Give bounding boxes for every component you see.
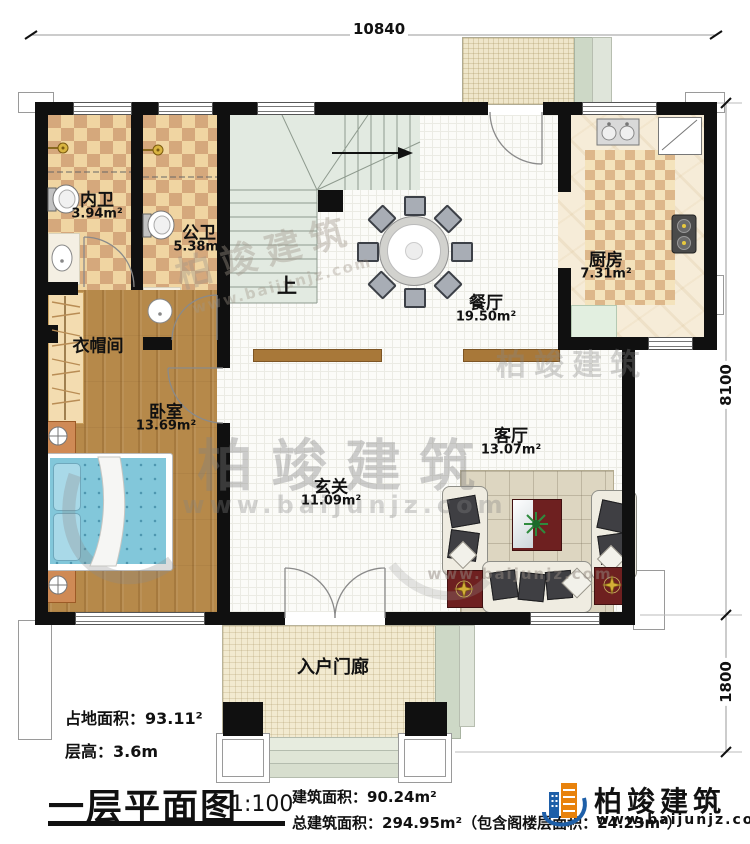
wall: [48, 282, 78, 295]
window-sill: [18, 620, 52, 740]
dim-right-lower: 1800: [717, 658, 735, 706]
window: [257, 102, 315, 115]
porch-side-step2: [459, 625, 475, 727]
wall: [543, 102, 582, 115]
bath-inner-sink-area: [48, 233, 80, 285]
wall-bath-divider: [131, 115, 143, 290]
brand-logo-icon: [536, 778, 590, 828]
window: [73, 102, 132, 115]
window: [582, 102, 657, 115]
dim-top: 10840: [350, 20, 408, 38]
beam-hall-right: [463, 349, 560, 362]
bed-pillow: [53, 513, 81, 561]
window: [158, 102, 213, 115]
brand-logo: 柏竣建筑 www.baijunjz.com: [536, 778, 746, 834]
scale-text: 1:100: [230, 792, 293, 817]
land-area-text: 占地面积：93.11²: [65, 705, 203, 729]
stairs-area-lower: [230, 190, 317, 303]
wall: [558, 337, 648, 350]
title-underline: [48, 821, 285, 826]
wall: [132, 102, 158, 115]
sofa-cushion: [518, 572, 547, 603]
armchair-cushion: [447, 495, 481, 529]
wall-kitchen: [558, 115, 571, 192]
area-gongwei: 5.38m²: [173, 240, 224, 255]
pillar-base-right: [398, 733, 452, 783]
beam-hall-left: [253, 349, 382, 362]
cloak-hanger-rack: [48, 292, 84, 424]
wall: [143, 337, 172, 350]
window: [648, 337, 693, 350]
brand-website: www.baijunjz.com: [596, 812, 750, 828]
kitchen-corner-cabinet: [658, 117, 702, 155]
pillar-base-left: [216, 733, 270, 783]
wall: [704, 102, 717, 350]
rear-terrace: [462, 37, 576, 105]
kitchen-rug: [585, 150, 675, 305]
sofa-cushion: [489, 569, 519, 600]
label-menlang: 入户门廊: [297, 653, 369, 679]
wall: [35, 102, 48, 625]
side-table-left: [447, 570, 483, 608]
dining-chair: [451, 242, 473, 262]
wall: [205, 612, 278, 625]
wall: [392, 612, 530, 625]
wall: [600, 612, 635, 625]
rear-terrace-step2: [592, 37, 612, 105]
floor-plan: 10840 8100 1800 柏竣建筑 www.baijunjz.com 柏竣…: [0, 0, 750, 844]
label-yimaojian: 衣帽间: [73, 332, 124, 357]
stairs-area: [230, 115, 420, 190]
dim-right-upper: 8100: [717, 361, 735, 409]
floor-height-text: 层高：3.6m: [65, 738, 158, 762]
dining-chair: [404, 288, 426, 308]
dining-chair: [404, 196, 426, 216]
wall: [217, 423, 230, 612]
door-jamb: [385, 612, 392, 625]
wall: [622, 350, 635, 625]
wall: [35, 612, 75, 625]
door-jamb: [278, 612, 285, 625]
wall: [693, 337, 717, 350]
area-woshi: 13.69m²: [136, 419, 196, 434]
dining-chair: [357, 242, 379, 262]
wall-stub: [48, 325, 58, 343]
area-canting: 19.50m²: [456, 310, 516, 325]
stairs-up-label: 上: [277, 270, 297, 299]
coffee-table-glass: [513, 500, 533, 548]
area-neiwei: 3.94m²: [71, 207, 122, 222]
wall-stair-stub: [318, 190, 343, 212]
window: [530, 612, 600, 625]
wall-kitchen: [558, 268, 571, 350]
bed-pillow: [53, 463, 81, 511]
kitchen-mat: [571, 305, 617, 341]
porch-pillar-left: [223, 702, 263, 736]
window-sill: [633, 570, 665, 630]
wall: [213, 102, 257, 115]
rear-terrace-step: [574, 37, 594, 105]
area-xuanguan: 11.09m²: [301, 494, 361, 509]
window: [75, 612, 205, 625]
area-chufang: 7.31m²: [580, 267, 631, 282]
area-keting: 13.07m²: [481, 443, 541, 458]
dining-table-hub: [405, 242, 423, 260]
floor-area-text: 建筑面积：90.24m²: [292, 786, 437, 807]
wall: [315, 102, 488, 115]
porch-pillar-right: [405, 702, 447, 736]
